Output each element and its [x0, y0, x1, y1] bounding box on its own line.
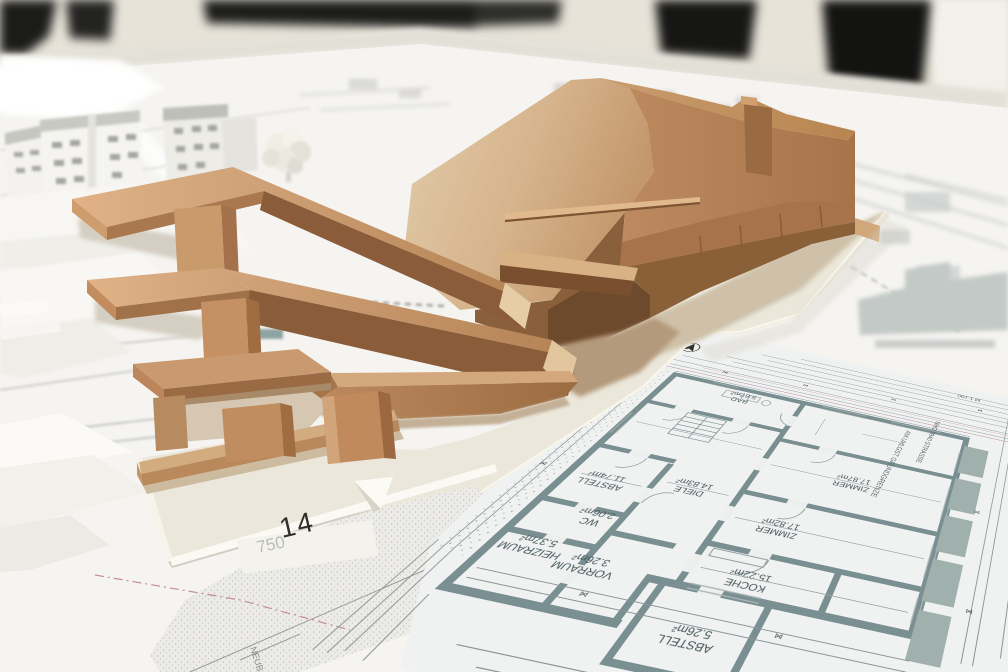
svg-text:⋈: ⋈ — [965, 607, 974, 616]
